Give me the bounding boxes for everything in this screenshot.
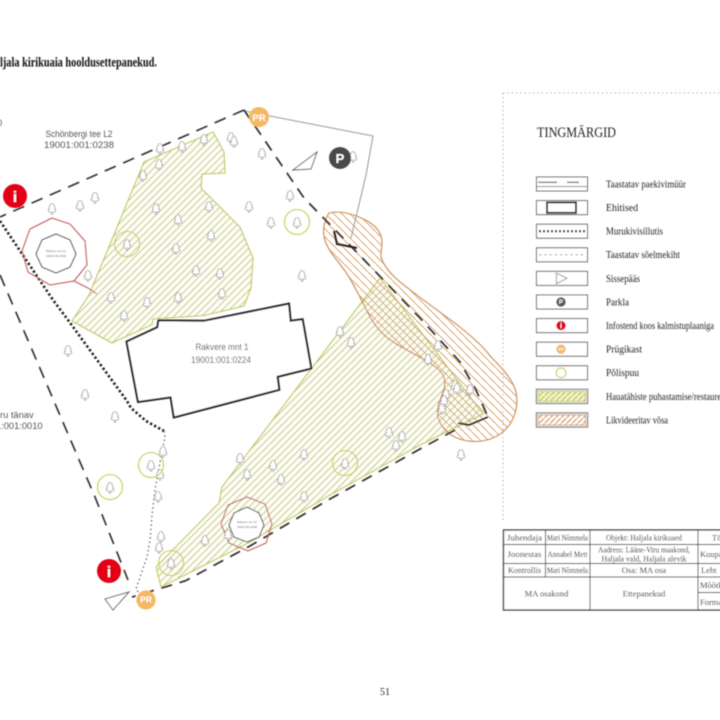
svg-text:Rakvere mnt 1b: Rakvere mnt 1b — [237, 520, 257, 524]
svg-text:i: i — [107, 564, 111, 581]
svg-text:MA osakond: MA osakond — [525, 589, 569, 599]
svg-text:Kontrollis: Kontrollis — [508, 565, 541, 575]
svg-text:Schönbergi tee L2: Schönbergi tee L2 — [46, 129, 113, 139]
svg-text:Leht: Leht — [701, 565, 717, 575]
svg-text:Ehitised: Ehitised — [606, 203, 638, 214]
svg-text:TINGMÄRGID: TINGMÄRGID — [537, 124, 616, 141]
svg-text:Haljala vald, Haljala alevik: Haljala vald, Haljala alevik — [602, 555, 687, 564]
svg-text:P: P — [559, 299, 563, 306]
svg-text:P: P — [336, 151, 345, 166]
svg-text:PR: PR — [140, 595, 152, 605]
svg-text:Mari Nõmmela: Mari Nõmmela — [547, 533, 588, 543]
svg-text:Sissepääs: Sissepääs — [606, 274, 640, 285]
svg-text:19001:001:0099: 19001:001:0099 — [46, 254, 67, 258]
svg-text:ru tänav: ru tänav — [0, 410, 34, 420]
svg-text:19001:001:0238: 19001:001:0238 — [44, 140, 114, 150]
svg-text:Ettepanekud: Ettepanekud — [623, 589, 666, 599]
svg-text:Murukivisillutis: Murukivisillutis — [606, 227, 663, 238]
svg-text:i: i — [560, 323, 562, 330]
svg-text:1:001:0010: 1:001:0010 — [0, 421, 43, 431]
svg-text:Töö nr: Töö nr — [712, 533, 720, 543]
svg-text:Objekt: Haljala kirikuaed: Objekt: Haljala kirikuaed — [606, 533, 683, 543]
svg-text:Parkla: Parkla — [606, 297, 630, 308]
svg-text:Rakvere mnt 1: Rakvere mnt 1 — [196, 342, 249, 352]
svg-text:Kuupäev: Kuupäev — [700, 549, 720, 559]
svg-text:19001:001:0224: 19001:001:0224 — [191, 355, 251, 365]
svg-text:Osa: MA osa: Osa: MA osa — [622, 565, 667, 575]
svg-text:Taastatav paekivimüür: Taastatav paekivimüür — [606, 179, 687, 190]
svg-text:Prügikast: Prügikast — [606, 345, 642, 356]
svg-text:Aadress: Lääne-Viru maakond,: Aadress: Lääne-Viru maakond, — [598, 546, 690, 555]
svg-text:Infostend koos kalmistuplaanig: Infostend koos kalmistuplaaniga — [606, 321, 714, 332]
svg-text:Mõõtkava: Mõõtkava — [700, 580, 720, 590]
svg-text:Annabel Mett: Annabel Mett — [548, 549, 589, 559]
svg-text:Taastatav sõelmekiht: Taastatav sõelmekiht — [606, 250, 680, 261]
svg-text:Mari Nõmmela: Mari Nõmmela — [547, 565, 588, 575]
svg-text:PR: PR — [558, 347, 564, 352]
svg-text:Rakvere mnt 1a: Rakvere mnt 1a — [46, 249, 66, 253]
svg-text:PR: PR — [252, 113, 265, 124]
svg-text:Joonestas: Joonestas — [508, 549, 542, 559]
svg-text:Põlispuu: Põlispuu — [606, 368, 639, 379]
svg-text:0: 0 — [0, 118, 2, 128]
svg-text:51: 51 — [380, 687, 390, 698]
svg-text:Hauatähiste puhastamise/restau: Hauatähiste puhastamise/restaureerim — [606, 392, 720, 403]
svg-text:19001:001:0098: 19001:001:0098 — [237, 525, 258, 529]
svg-text:Formaat: Formaat — [700, 597, 720, 607]
svg-text:i: i — [13, 189, 17, 206]
svg-text:Juhendaja: Juhendaja — [507, 533, 542, 543]
svg-text:ljala kirikuaia hooldusettepan: ljala kirikuaia hooldusettepanekud. — [0, 56, 157, 71]
svg-text:Likvideeritav võsa: Likvideeritav võsa — [606, 415, 668, 426]
